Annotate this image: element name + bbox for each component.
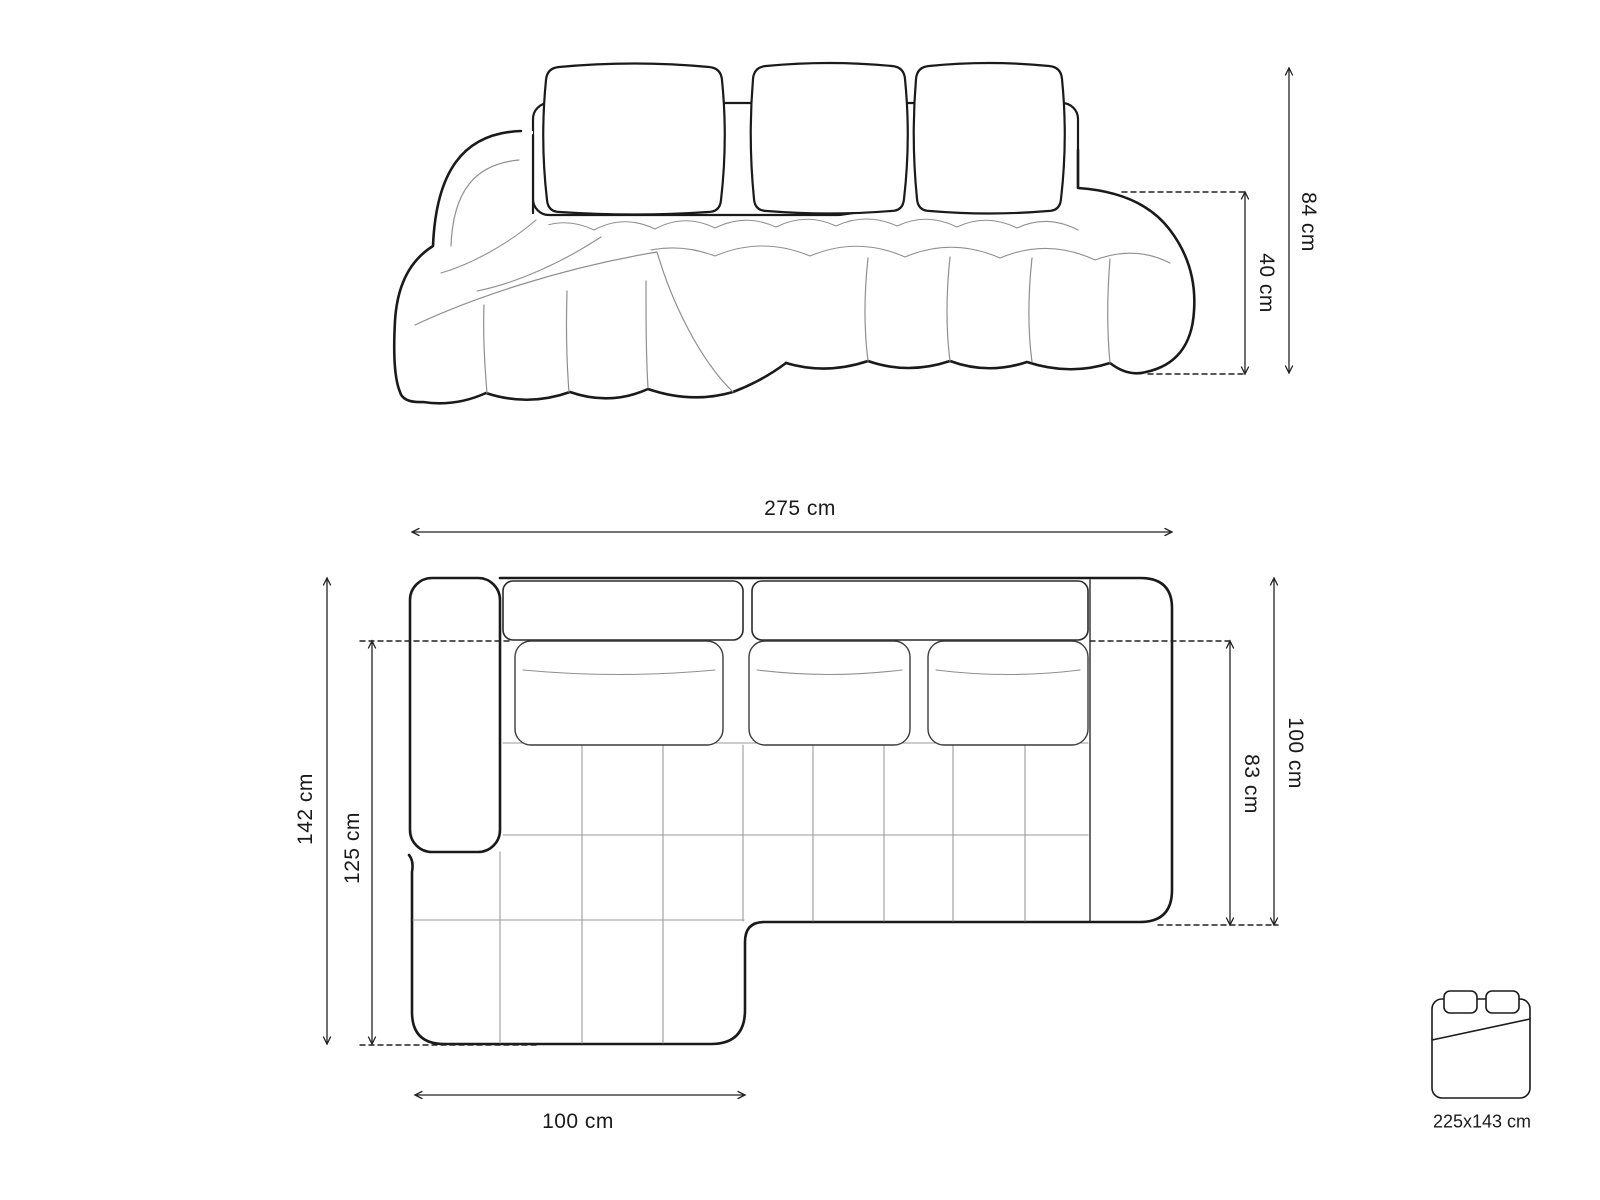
- dimension-label-side-depth: 100 cm: [1283, 717, 1307, 789]
- sofa-dimension-diagram: 84 cm 40 cm 275 cm 142 cm 125 cm 100 cm …: [0, 0, 1600, 1200]
- dimension-label-chaise-length: 125 cm: [341, 812, 365, 884]
- front-main-body: [657, 188, 1194, 392]
- bed-pillow-right: [1486, 991, 1519, 1013]
- front-pillow-2: [751, 63, 908, 214]
- dimension-label-total-width: 275 cm: [764, 497, 836, 521]
- bed-pillow-left: [1444, 991, 1477, 1013]
- dimension-label-total-depth: 142 cm: [294, 773, 318, 845]
- bed-blanket-line: [1432, 1019, 1530, 1040]
- plan-cushion-3: [928, 641, 1088, 745]
- bed-body: [1432, 999, 1530, 1098]
- front-view-dimensions: [1242, 68, 1293, 374]
- plan-left-armrest: [410, 578, 500, 852]
- plan-cushion-1: [515, 641, 723, 745]
- sofa-top-view: [360, 578, 1278, 1045]
- dimension-label-total-height: 84 cm: [1296, 192, 1320, 252]
- plan-cushion-2: [749, 641, 910, 745]
- sleeping-area-size-label: 225x143 cm: [1433, 1112, 1531, 1133]
- dimension-label-chaise-width: 100 cm: [542, 1110, 614, 1134]
- plan-backrest-left: [503, 581, 743, 640]
- dimension-label-seat-depth: 83 cm: [1239, 754, 1263, 814]
- plan-backrest-right: [752, 581, 1088, 640]
- front-pillow-1: [543, 64, 725, 215]
- sofa-front-view: [394, 63, 1245, 403]
- bed-icon: [1432, 991, 1530, 1098]
- dimension-label-seat-height: 40 cm: [1254, 253, 1278, 313]
- diagram-linework: [0, 0, 1600, 1200]
- front-pillow-3: [914, 63, 1065, 214]
